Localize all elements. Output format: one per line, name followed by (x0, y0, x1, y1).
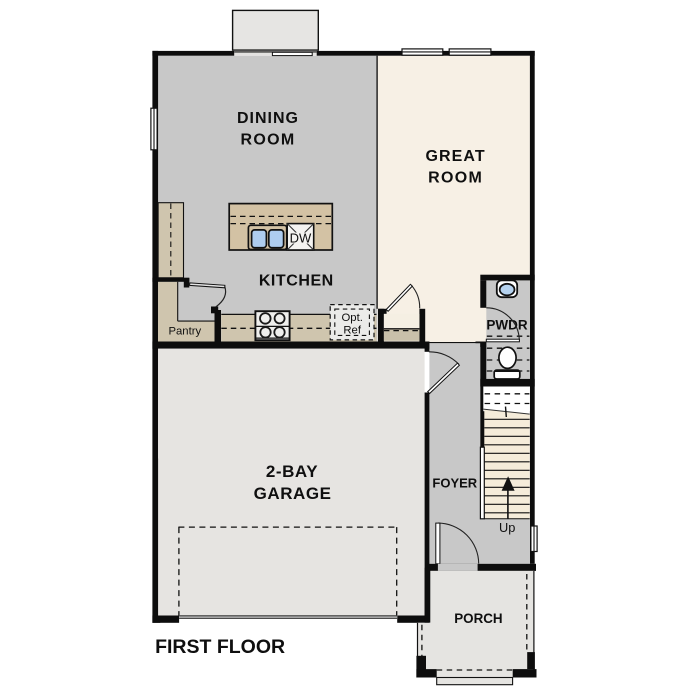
svg-text:FIRST FLOOR: FIRST FLOOR (155, 636, 285, 658)
svg-text:Opt.: Opt. (342, 312, 363, 324)
svg-text:PORCH: PORCH (454, 611, 502, 626)
svg-text:Up: Up (499, 520, 515, 535)
svg-text:ROOM: ROOM (428, 169, 483, 186)
svg-text:Pantry: Pantry (168, 326, 201, 338)
svg-text:DW: DW (290, 230, 312, 245)
svg-text:GREAT: GREAT (425, 148, 485, 165)
svg-text:GARAGE: GARAGE (254, 484, 332, 503)
svg-text:Ref: Ref (343, 324, 361, 336)
svg-text:DINING: DINING (237, 110, 299, 127)
svg-text:PWDR: PWDR (486, 317, 527, 332)
svg-text:2-BAY: 2-BAY (266, 462, 318, 481)
svg-text:FOYER: FOYER (432, 476, 477, 491)
svg-text:KITCHEN: KITCHEN (259, 273, 334, 290)
svg-text:ROOM: ROOM (241, 131, 296, 148)
